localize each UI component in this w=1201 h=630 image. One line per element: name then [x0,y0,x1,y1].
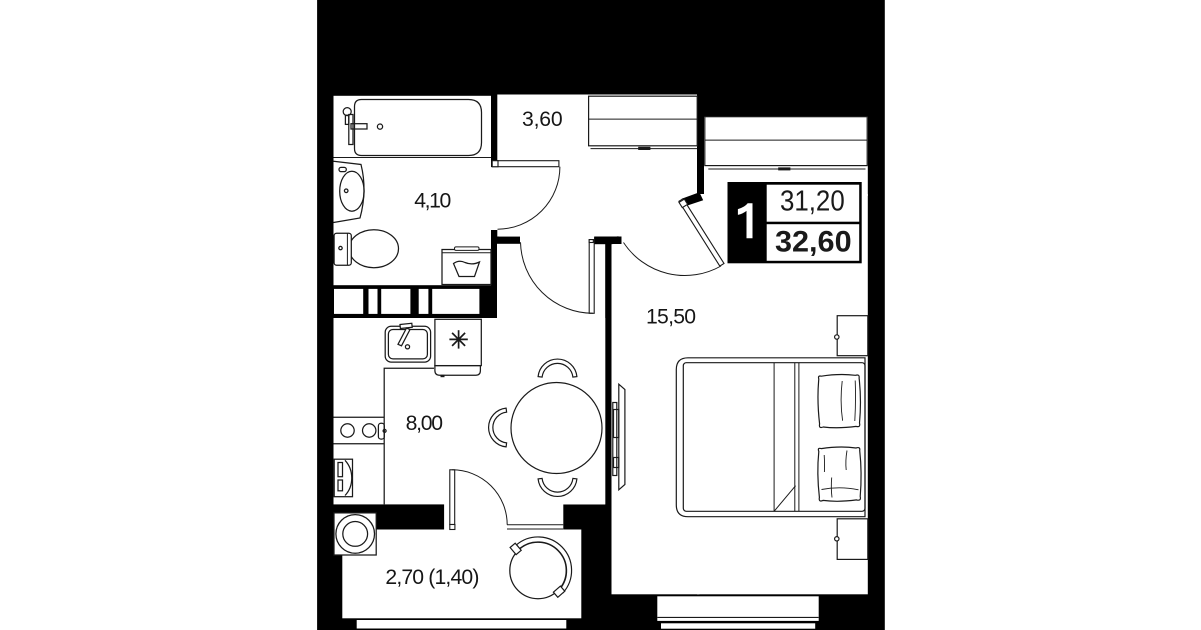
svg-text:31,20: 31,20 [780,186,845,218]
svg-text:3,60: 3,60 [522,108,563,131]
svg-text:8,00: 8,00 [406,412,444,435]
svg-text:32,60: 32,60 [775,226,852,259]
svg-text:2,70 (1,40): 2,70 (1,40) [385,566,479,589]
svg-text:4,10: 4,10 [414,190,451,213]
svg-text:15,50: 15,50 [646,306,696,329]
